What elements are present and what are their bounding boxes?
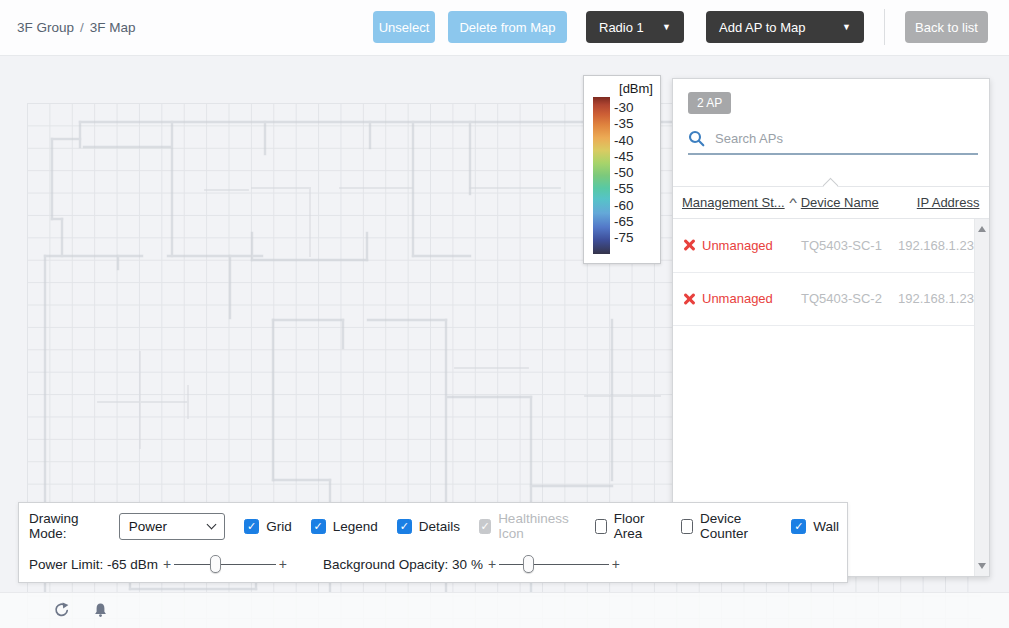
add-ap-label: Add AP to Map (719, 20, 806, 35)
status-text: Unmanaged (702, 238, 773, 253)
checkbox-legend[interactable]: ✓Legend (311, 519, 378, 534)
drawing-mode-select[interactable]: Power (119, 513, 225, 540)
refresh-icon[interactable] (52, 602, 69, 619)
checkbox-label: Grid (266, 519, 292, 534)
checkbox-checked-icon[interactable]: ✓ (244, 519, 259, 534)
chevron-down-icon: ▼ (842, 23, 851, 32)
signal-strength-legend: [dBm] -30-35-40-45-50-55-60-65-75 (583, 75, 661, 264)
ip-address-cell: 192.168.1.232 (898, 291, 981, 306)
checkbox-label: Details (419, 519, 460, 534)
column-management-status[interactable]: Management St... (682, 195, 785, 210)
checkbox-label: Device Counter (700, 511, 772, 541)
checkbox-device-counter[interactable]: Device Counter (681, 511, 772, 541)
unmanaged-x-icon (683, 293, 695, 305)
radio-select-dropdown[interactable]: Radio 1 ▼ (586, 11, 684, 43)
legend-tick-label: -50 (614, 165, 654, 181)
background-opacity-label: Background Opacity: 30 % (323, 557, 483, 572)
back-to-list-button[interactable]: Back to list (905, 11, 988, 43)
slider-end-tick: + (488, 553, 496, 575)
legend-tick-label: -40 (614, 133, 654, 149)
legend-tick-label: -60 (614, 198, 654, 214)
checkbox-details[interactable]: ✓Details (397, 519, 460, 534)
legend-tick-label: -75 (614, 230, 654, 246)
scroll-up-arrow-icon[interactable] (978, 226, 986, 232)
checkbox-checked-icon: ✓ (479, 519, 491, 534)
toolbar-divider (884, 9, 885, 45)
scroll-down-arrow-icon[interactable] (978, 563, 986, 569)
sort-ascending-icon: ^ (789, 195, 797, 210)
status-text: Unmanaged (702, 291, 773, 306)
legend-tick-labels: -30-35-40-45-50-55-60-65-75 (614, 100, 654, 247)
layer-checkbox-group: ✓Grid✓Legend✓Details✓Healthiness IconFlo… (244, 511, 839, 541)
power-limit-label: Power Limit: -65 dBm (29, 557, 158, 572)
checkbox-checked-icon[interactable]: ✓ (791, 519, 806, 534)
device-name-cell: TQ5403-SC-1 (801, 238, 898, 253)
checkbox-healthiness-icon: ✓Healthiness Icon (479, 511, 576, 541)
checkbox-unchecked-icon[interactable] (681, 519, 693, 534)
legend-tick-label: -35 (614, 116, 654, 132)
unmanaged-x-icon (683, 239, 695, 251)
checkbox-checked-icon[interactable]: ✓ (397, 519, 412, 534)
checkbox-grid[interactable]: ✓Grid (244, 519, 292, 534)
column-device-name[interactable]: Device Name (801, 195, 879, 210)
legend-gradient-bar (593, 97, 610, 254)
checkbox-label: Healthiness Icon (498, 511, 576, 541)
legend-tick-label: -55 (614, 181, 654, 197)
drawing-mode-label: Drawing Mode: (29, 511, 111, 541)
add-ap-to-map-dropdown[interactable]: Add AP to Map ▼ (706, 11, 864, 43)
checkbox-wall[interactable]: ✓Wall (791, 519, 839, 534)
checkbox-label: Floor Area (614, 511, 662, 541)
slider-track (174, 564, 276, 565)
background-opacity-slider-thumb[interactable] (523, 555, 534, 573)
breadcrumb-map-current: 3F Map (90, 20, 136, 35)
slider-end-tick: + (163, 553, 171, 575)
legend-title: [dBm] (619, 81, 653, 96)
search-aps-input[interactable] (715, 131, 945, 146)
column-ip-address[interactable]: IP Address (917, 195, 980, 210)
checkbox-label: Legend (333, 519, 378, 534)
power-limit-slider-thumb[interactable] (210, 555, 221, 573)
ap-list-scrollbar[interactable] (974, 219, 989, 576)
legend-tick-label: -45 (614, 149, 654, 165)
slider-end-tick: + (279, 553, 287, 575)
ap-search-row (688, 123, 978, 155)
device-name-cell: TQ5403-SC-2 (801, 291, 898, 306)
top-toolbar: 3F Group/3F Map Unselect Delete from Map… (0, 0, 1009, 56)
drawing-mode-value: Power (129, 519, 167, 534)
breadcrumb-group-link[interactable]: 3F Group (17, 20, 74, 35)
delete-from-map-button[interactable]: Delete from Map (448, 11, 567, 43)
map-footer-bar (0, 592, 1009, 628)
chevron-down-icon: ▼ (662, 23, 671, 32)
notification-bell-icon[interactable] (92, 602, 109, 619)
chevron-down-icon (207, 519, 217, 529)
ip-address-cell: 192.168.1.231 (898, 238, 981, 253)
legend-tick-label: -65 (614, 214, 654, 230)
controls-row-options: Drawing Mode: Power ✓Grid✓Legend✓Details… (29, 511, 839, 541)
slider-track (499, 564, 609, 565)
search-icon (688, 130, 705, 147)
breadcrumb-separator: / (80, 20, 84, 35)
management-status-cell: Unmanaged (683, 291, 801, 306)
breadcrumb: 3F Group/3F Map (17, 20, 142, 35)
legend-tick-label: -30 (614, 100, 654, 116)
ap-count-badge: 2 AP (688, 92, 731, 114)
drawing-controls-panel: Drawing Mode: Power ✓Grid✓Legend✓Details… (18, 502, 848, 583)
ap-table-row[interactable]: UnmanagedTQ5403-SC-1192.168.1.231 (673, 219, 974, 273)
power-limit-slider[interactable]: + + (164, 553, 286, 575)
background-opacity-slider[interactable]: + + (489, 553, 619, 575)
unselect-button[interactable]: Unselect (373, 11, 435, 43)
app-root: 3F Group/3F Map Unselect Delete from Map… (0, 0, 1009, 628)
slider-end-tick: + (612, 553, 620, 575)
checkbox-unchecked-icon[interactable] (595, 519, 607, 534)
checkbox-checked-icon[interactable]: ✓ (311, 519, 326, 534)
checkbox-label: Wall (813, 519, 839, 534)
radio-select-value: Radio 1 (599, 20, 644, 35)
ap-table-row[interactable]: UnmanagedTQ5403-SC-2192.168.1.232 (673, 273, 974, 327)
management-status-cell: Unmanaged (683, 238, 801, 253)
checkbox-floor-area[interactable]: Floor Area (595, 511, 662, 541)
controls-row-sliders: Power Limit: -65 dBm + + Background Opac… (29, 549, 619, 579)
